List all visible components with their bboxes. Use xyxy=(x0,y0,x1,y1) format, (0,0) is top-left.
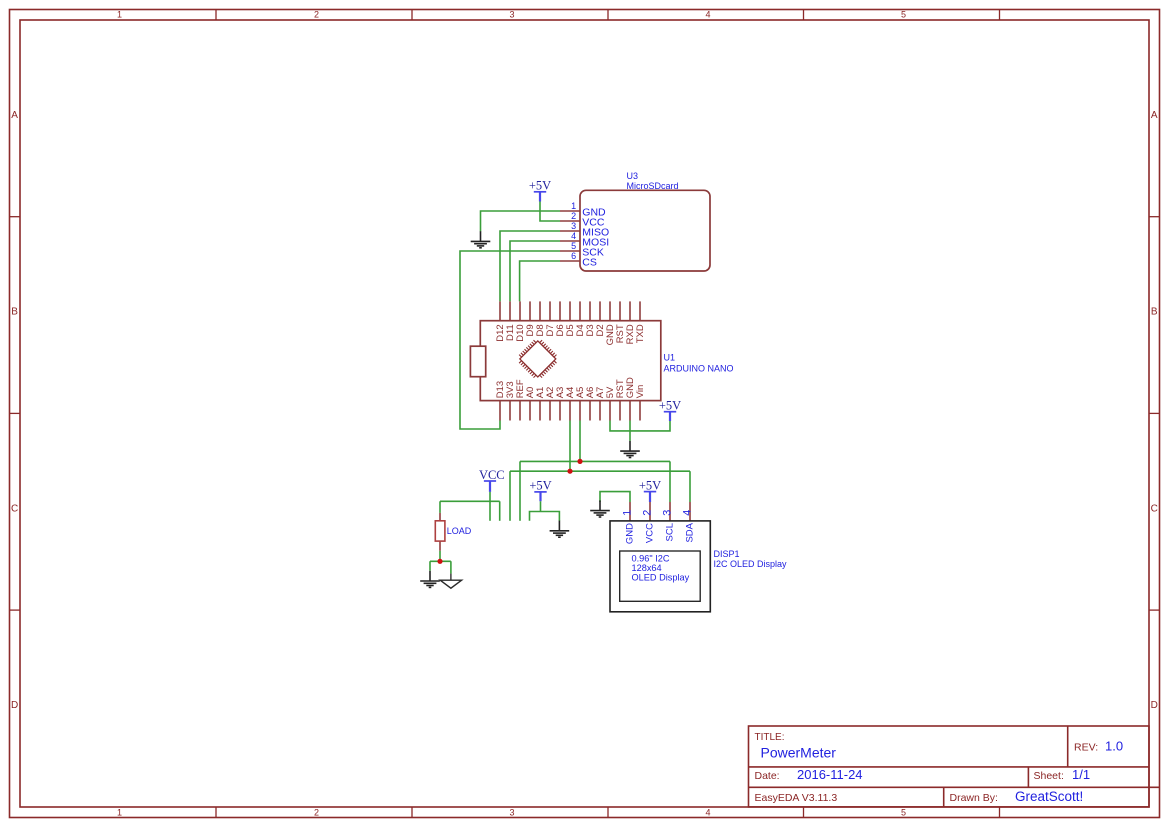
svg-text:1: 1 xyxy=(571,201,576,211)
svg-text:5: 5 xyxy=(901,10,906,20)
svg-text:GreatScott!: GreatScott! xyxy=(1015,789,1083,804)
svg-text:U1: U1 xyxy=(664,352,676,362)
svg-text:1: 1 xyxy=(117,10,122,20)
svg-text:1: 1 xyxy=(621,510,633,516)
svg-text:4: 4 xyxy=(571,231,576,241)
svg-text:D: D xyxy=(1151,700,1158,711)
svg-text:C: C xyxy=(11,504,18,515)
svg-text:5: 5 xyxy=(901,808,906,818)
svg-text:TITLE:: TITLE: xyxy=(755,732,785,743)
svg-text:+5V: +5V xyxy=(529,479,551,493)
svg-text:1.0: 1.0 xyxy=(1105,739,1123,754)
svg-text:3: 3 xyxy=(661,510,673,516)
svg-text:2: 2 xyxy=(641,510,653,516)
svg-text:U3: U3 xyxy=(627,171,639,181)
svg-text:SCL: SCL xyxy=(664,523,675,541)
svg-text:LOAD: LOAD xyxy=(447,526,472,536)
svg-text:REV:: REV: xyxy=(1074,742,1098,754)
svg-text:EasyEDA V3.11.3: EasyEDA V3.11.3 xyxy=(755,792,838,804)
svg-text:Drawn By:: Drawn By: xyxy=(950,792,998,804)
svg-text:5: 5 xyxy=(571,241,576,251)
svg-text:2: 2 xyxy=(314,808,319,818)
svg-text:TXD: TXD xyxy=(635,324,646,343)
svg-text:I2C OLED Display: I2C OLED Display xyxy=(714,559,788,569)
svg-text:C: C xyxy=(1151,504,1158,515)
svg-text:3: 3 xyxy=(571,221,576,231)
svg-text:4: 4 xyxy=(681,510,693,516)
svg-text:2: 2 xyxy=(571,211,576,221)
svg-text:B: B xyxy=(11,307,18,318)
svg-text:+5V: +5V xyxy=(659,398,681,412)
svg-text:+5V: +5V xyxy=(639,478,661,492)
svg-text:ARDUINO NANO: ARDUINO NANO xyxy=(664,363,734,373)
svg-text:GND: GND xyxy=(624,523,635,544)
svg-text:3: 3 xyxy=(509,808,514,818)
svg-text:CS: CS xyxy=(582,256,597,268)
svg-text:2016-11-24: 2016-11-24 xyxy=(797,767,863,782)
svg-text:VCC: VCC xyxy=(644,523,655,543)
svg-text:A: A xyxy=(1151,110,1158,121)
svg-text:DISP1: DISP1 xyxy=(714,549,740,559)
svg-text:VCC: VCC xyxy=(479,468,505,482)
svg-text:2: 2 xyxy=(314,10,319,20)
svg-text:D: D xyxy=(11,700,18,711)
svg-text:0.96" I2C: 0.96" I2C xyxy=(632,554,670,564)
svg-text:A: A xyxy=(11,110,18,121)
svg-text:Vin: Vin xyxy=(635,385,646,399)
svg-text:1/1: 1/1 xyxy=(1072,767,1090,782)
svg-text:4: 4 xyxy=(705,10,710,20)
svg-text:3: 3 xyxy=(509,10,514,20)
svg-text:SDA: SDA xyxy=(684,522,695,542)
svg-text:MicroSDcard: MicroSDcard xyxy=(627,181,679,191)
svg-text:Date:: Date: xyxy=(755,770,780,782)
svg-text:OLED Display: OLED Display xyxy=(632,573,690,583)
svg-text:PowerMeter: PowerMeter xyxy=(761,745,837,761)
svg-text:+5V: +5V xyxy=(529,179,551,193)
svg-text:4: 4 xyxy=(705,808,710,818)
svg-text:6: 6 xyxy=(571,251,576,261)
svg-text:128x64: 128x64 xyxy=(632,563,662,573)
svg-text:B: B xyxy=(1151,307,1158,318)
svg-text:Sheet:: Sheet: xyxy=(1034,770,1064,782)
svg-text:1: 1 xyxy=(117,808,122,818)
